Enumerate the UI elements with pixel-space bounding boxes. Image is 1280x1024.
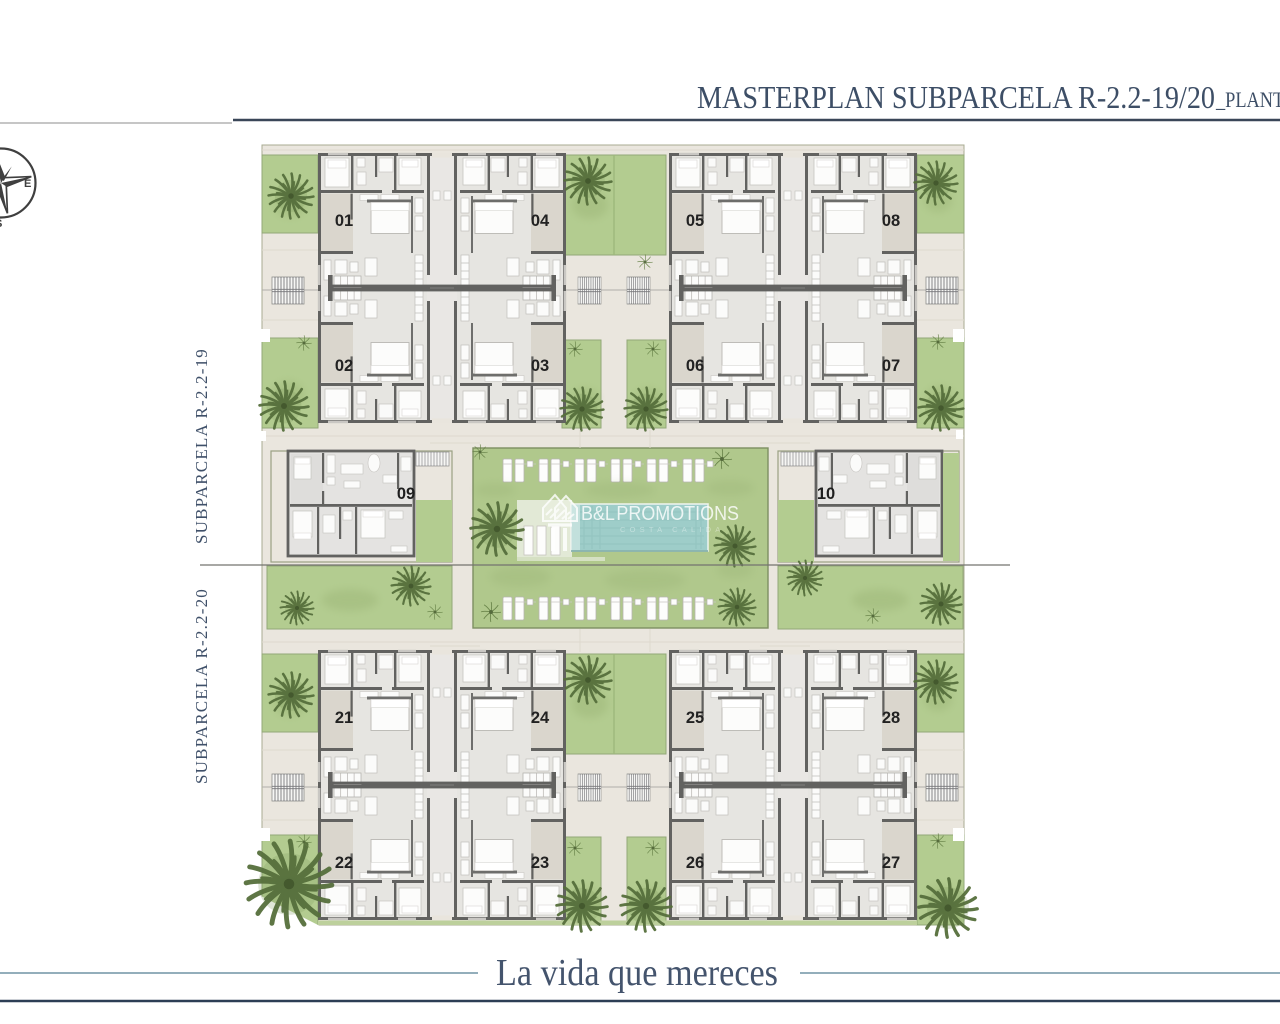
svg-text:SUBPARCELA R-2.2-20: SUBPARCELA R-2.2-20 — [192, 588, 211, 784]
svg-text:MASTERPLAN SUBPARCELA R-2.2-19: MASTERPLAN SUBPARCELA R-2.2-19/20 — [697, 79, 1215, 115]
svg-text:S: S — [0, 218, 2, 230]
svg-text:_PLANTA: _PLANTA — [1215, 87, 1280, 112]
svg-text:03: 03 — [531, 357, 549, 375]
svg-text:25: 25 — [686, 709, 704, 727]
svg-text:07: 07 — [882, 357, 900, 375]
svg-text:08: 08 — [882, 212, 900, 230]
svg-text:28: 28 — [882, 709, 900, 727]
svg-text:05: 05 — [686, 212, 704, 230]
svg-text:B&L PROMOTIONS: B&L PROMOTIONS — [581, 502, 739, 525]
svg-text:10: 10 — [817, 485, 835, 503]
svg-text:22: 22 — [335, 854, 353, 872]
svg-text:04: 04 — [531, 212, 550, 230]
svg-text:E: E — [24, 178, 31, 190]
svg-text:21: 21 — [335, 709, 353, 727]
svg-text:23: 23 — [531, 854, 549, 872]
svg-text:06: 06 — [686, 357, 704, 375]
svg-text:26: 26 — [686, 854, 704, 872]
svg-text:27: 27 — [882, 854, 900, 872]
svg-text:09: 09 — [397, 485, 415, 503]
svg-text:COSTA CALIDA: COSTA CALIDA — [620, 525, 724, 534]
svg-text:24: 24 — [531, 709, 550, 727]
svg-text:01: 01 — [335, 212, 353, 230]
svg-text:SUBPARCELA R-2.2-19: SUBPARCELA R-2.2-19 — [192, 348, 211, 544]
svg-text:02: 02 — [335, 357, 353, 375]
svg-text:La vida que mereces: La vida que mereces — [496, 952, 778, 994]
